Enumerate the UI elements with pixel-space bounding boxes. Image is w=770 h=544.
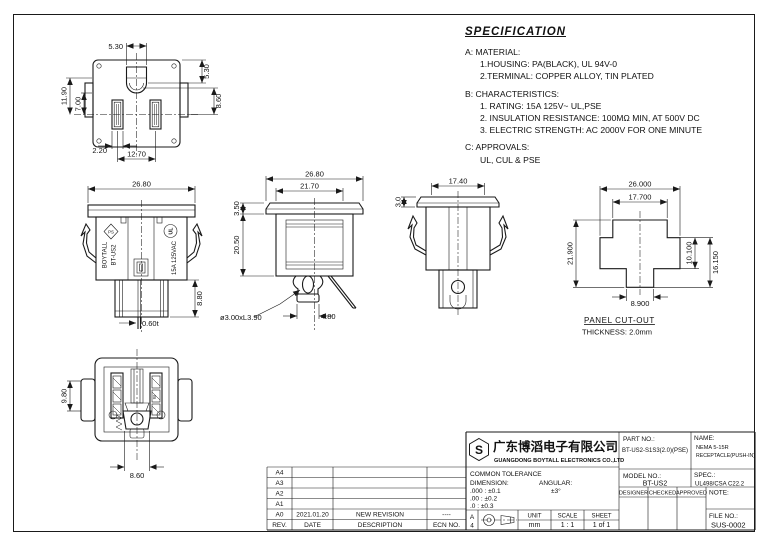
approved-label: APPROVED [676,491,707,497]
panel-thickness-label: THICKNESS: 2.0mm [582,328,652,337]
date-header: DATE [304,522,322,529]
engineering-drawing-page: SPECIFICATION A: MATERIAL: 1.HOUSING: PA… [0,0,770,544]
dim-hole-side: 5.30 [202,64,211,79]
part-no-value: BT-US2-S1S3(2.0)(PSE) [622,448,688,454]
sheet-label: SHEET [591,514,611,520]
dim-side-depth: 8.80 [195,291,204,306]
model-no-value: BT-US2 [643,481,668,488]
dim-sideb-flange: 3.0 [394,197,403,207]
sideb-view-dimensions: 17.40 3.0 [394,177,485,208]
spec-strength: 3. ELECTRIC STRENGTH: AC 2000V FOR ONE M… [465,124,757,136]
tol-row2: .00 : ±0.2 [470,496,497,503]
rear-view: W 9.80 8.60 [55,345,213,487]
spec-approvals: UL, CUL & PSE [465,154,757,166]
scale-value: 1 : 1 [561,522,575,529]
dim-cutout-top-width: 17.700 [629,193,652,202]
dim-section-width: 26.80 [305,170,324,179]
dim-rear-bottom: 8.60 [130,471,145,480]
cutout-dimensions: 26.000 17.700 21.900 10.100 16.150 8.900 [566,180,721,309]
paper-size-4: 4 [470,523,474,530]
section-view-dimensions: 26.80 21.70 3.50 20.50 ø3.00xL3.90 4.80 [220,170,363,323]
rev-a0-desc: NEW REVISION [356,512,404,519]
rev-a0-ecn: ---- [442,512,451,519]
brand-marking: BOYTALL [103,241,109,268]
sheet-value: 1 of 1 [593,522,611,529]
tol-angular-value: ±3° [551,487,561,495]
dim-inner-width: 21.70 [300,182,319,191]
dim-left-inner: 7.00 [74,97,83,112]
dim-cutout-height: 21.900 [566,242,575,265]
spec-material-header: A: MATERIAL: [465,46,757,58]
front-view: 5.30 5.30 8.60 11.90 7.00 2.20 12.70 [28,25,263,180]
unit-value: mm [529,522,541,529]
rev-a1: A1 [276,501,284,508]
dim-flange-height: 3.50 [232,201,241,216]
model-marking: BT-US2 [112,244,118,266]
company-name-en: GUANGDONG BOYTALL ELECTRONICS CO.,LTD [494,458,624,464]
spec-housing: 1.HOUSING: PA(BLACK), UL 94V-0 [465,58,757,70]
file-no-label: FILE NO.: [709,513,738,520]
checked-label: CHECKED [649,491,676,497]
rear-view-dimensions: 9.80 8.60 [60,381,165,480]
rev-a0: A0 [276,512,284,519]
company-name-cn: 广东博滔电子有限公司 [493,439,618,454]
ecn-header: ECN NO. [433,522,460,529]
tol-row1: .000 : ±0.1 [470,488,501,495]
side-view-markings: BOYTALL BT-US2 15A 125VAC PS UL [103,227,179,275]
panel-cutout-label: PANEL CUT-OUT [584,316,655,325]
dim-cutout-bottom: 8.900 [631,299,650,308]
tolerance-block: COMMON TOLERANCE DIMENSION: ANGULAR: .00… [470,471,572,510]
specification-block: SPECIFICATION A: MATERIAL: 1.HOUSING: PA… [465,26,757,166]
paper-size-a: A [470,514,475,521]
spec-characteristics-header: B: CHARACTERISTICS: [465,88,757,100]
dim-slot-width: 2.20 [92,146,107,155]
dim-terminal-thickness: 0.60t [142,319,160,328]
dim-cutout-width: 26.000 [629,180,652,189]
rev-a0-date: 2021.01.20 [296,512,329,519]
description-header: DESCRIPTION [358,522,403,529]
dim-pin-base: 4.80 [321,312,336,321]
tolerance-title: COMMON TOLERANCE [470,471,542,478]
name-line2: RECEPTACLE(PUSH-IN) [696,453,755,459]
section-view-body [266,198,363,330]
company-block: S 广东博滔电子有限公司 GUANGDONG BOYTALL ELECTRONI… [470,439,625,465]
name-line1: NEMA 5-15R [696,445,729,451]
name-label: NAME: [694,435,715,442]
logo-letter: S [475,443,483,457]
dim-cutout-band: 10.100 [685,242,694,265]
projection-symbol-icon [481,515,517,526]
section-view: 26.80 21.70 3.50 20.50 ø3.00xL3.90 4.80 [218,168,386,340]
side-view-marked: BOYTALL BT-US2 15A 125VAC PS UL 26.80 8.… [75,180,215,340]
file-no-value: SUS-0002 [711,521,746,530]
revision-table: A4 A3 A2 A1 A0 2021.01.20 NEW REVISION -… [272,470,460,530]
rear-view-body: W [81,349,192,461]
cutout-shape [600,211,680,295]
rev-a3: A3 [276,480,284,487]
title-block: A4 A3 A2 A1 A0 2021.01.20 NEW REVISION -… [267,430,759,533]
spec-value: UL498/CSA C22.2 [695,482,745,488]
dimension-label: DIMENSION: [470,480,509,487]
side-view-body [81,200,202,332]
spec-approvals-header: C: APPROVALS: [465,141,757,153]
spec-label: SPEC.: [694,472,716,479]
dim-right-lower: 8.60 [214,94,223,109]
note-label: NOTE: [709,490,729,497]
tol-row3: .0 : ±0.3 [470,503,494,510]
rev-header: REV. [272,522,287,529]
dim-left-outer: 11.90 [60,87,69,105]
dim-sideb-width: 17.40 [449,177,468,186]
dim-slot-pitch: 12.70 [127,150,146,159]
model-no-label: MODEL NO.: [623,473,661,480]
spec-rating: 1. RATING: 15A 125V~ UL,PSE [465,100,757,112]
rating-marking: 15A 125VAC [172,240,178,275]
part-no-label: PART NO.: [623,436,655,443]
spec-insulation: 2. INSULATION RESISTANCE: 100MΩ MIN, AT … [465,112,757,124]
side-view-wings: 17.40 3.0 [393,175,525,323]
cutout-labels: PANEL CUT-OUT THICKNESS: 2.0mm [582,316,655,337]
dim-body-depth: 20.50 [232,236,241,255]
front-view-body [74,53,200,157]
scale-label: SCALE [558,514,578,520]
spec-terminal: 2.TERMINAL: COPPER ALLOY, TIN PLATED [465,70,757,82]
spec-title: SPECIFICATION [465,26,757,38]
angular-label: ANGULAR: [539,480,572,487]
format-row: A 4 UNIT mm SCALE 1 : 1 SHEET 1 of 1 [470,514,612,530]
dim-pin-size: ø3.00xL3.90 [220,313,262,322]
unit-label: UNIT [528,514,542,520]
ul-mark-icon: UL [169,227,175,235]
rev-a2: A2 [276,491,284,498]
dim-side-width: 26.80 [132,180,151,189]
designer-label: DESIGNER [619,491,648,497]
rev-a4: A4 [276,470,284,477]
pse-mark-icon: PS [108,230,114,235]
dim-gap-top: 5.30 [108,42,123,51]
sideb-view-body [408,191,508,317]
part-info-block: PART NO.: BT-US2-S1S3(2.0)(PSE) NAME: NE… [619,435,755,530]
dim-cutout-lower: 16.150 [711,251,720,274]
dim-rear-side: 9.80 [60,389,69,404]
panel-cutout-view: 26.000 17.700 21.900 10.100 16.150 8.900… [553,175,763,347]
